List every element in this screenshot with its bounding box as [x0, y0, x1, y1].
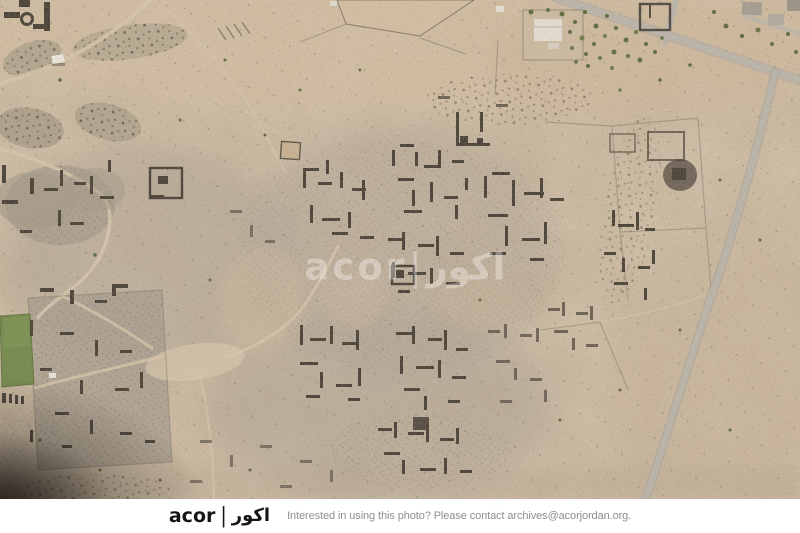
acor-logo-divider: |: [220, 505, 226, 526]
acor-watermark: acor|اكور: [304, 246, 505, 289]
watermark-divider: |: [407, 246, 426, 289]
aerial-photograph: acor|اكور: [0, 0, 800, 499]
watermark-latin: acor: [304, 246, 407, 289]
acor-logo: acor | اكور: [169, 507, 270, 526]
archive-photo-page: acor|اكور acor | اكور Interested in usin…: [0, 0, 800, 533]
acor-logo-latin: acor: [169, 507, 216, 526]
watermark-arabic: اكور: [426, 246, 505, 289]
usage-caption: Interested in using this photo? Please c…: [287, 510, 631, 522]
acor-logo-arabic: اكور: [232, 507, 270, 525]
photo-credit-bar: acor | اكور Interested in using this pho…: [0, 499, 800, 533]
